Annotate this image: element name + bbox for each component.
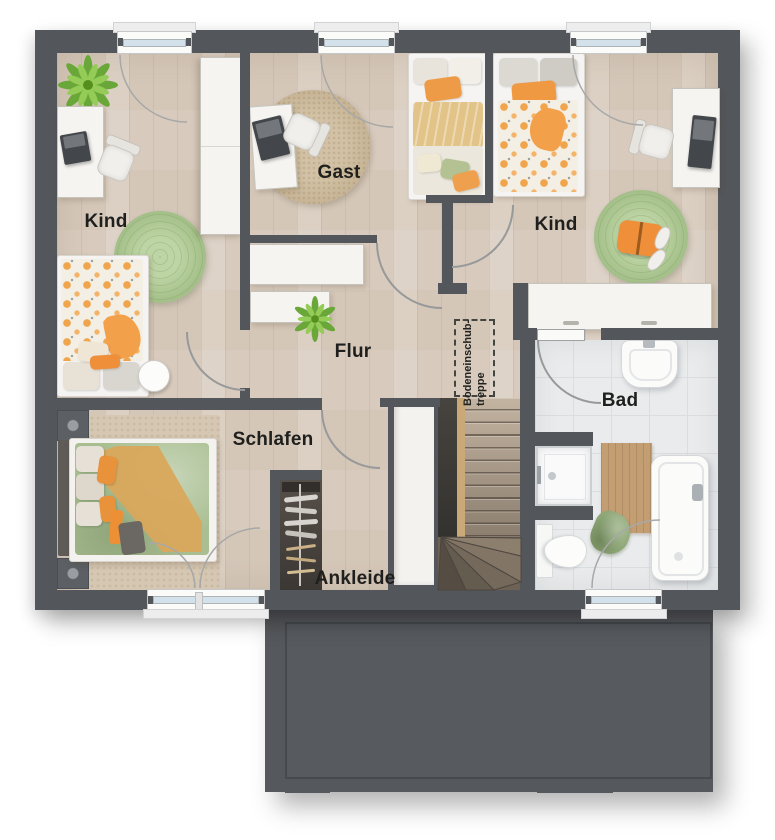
room-label-kind-right: Kind [534, 214, 577, 236]
window-arc [200, 528, 260, 588]
door-arc-kind-left [187, 332, 245, 390]
room-label-bad: Bad [602, 390, 639, 412]
door-arc-gast [377, 243, 442, 308]
room-label-flur: Flur [335, 341, 372, 363]
attic-ladder-label-line2: treppe [475, 310, 488, 406]
annex-tab [537, 788, 613, 793]
room-label-kind-left: Kind [84, 211, 127, 233]
room-label-ankleide: Ankleide [315, 568, 396, 590]
door-window-arcs [35, 30, 740, 610]
floorplan-canvas: Bodeneinschub- treppe Kind Gast Kind Flu… [0, 0, 775, 840]
window-arc [573, 55, 643, 125]
window-arc [150, 543, 195, 588]
window-arc [321, 55, 393, 127]
door-arc-kind-right [452, 205, 513, 267]
annex-tab [700, 786, 713, 791]
annex-tab [285, 788, 330, 793]
window-arc [592, 520, 660, 588]
room-label-schlafen: Schlafen [233, 429, 314, 451]
annex-roof-panel [285, 622, 712, 779]
window-arc [120, 55, 187, 122]
window-sill [143, 609, 269, 619]
window-sill [581, 609, 667, 619]
annex-roof [265, 610, 713, 792]
attic-ladder-label-line1: Bodeneinschub- [461, 310, 474, 406]
attic-ladder-label: Bodeneinschub- treppe [461, 310, 487, 406]
door-arc-bad [538, 340, 601, 403]
attic-ladder-box: Bodeneinschub- treppe [454, 319, 495, 397]
door-arc-schlafen [322, 410, 380, 468]
room-label-gast: Gast [317, 162, 360, 184]
winder-steps-fan [438, 537, 521, 590]
